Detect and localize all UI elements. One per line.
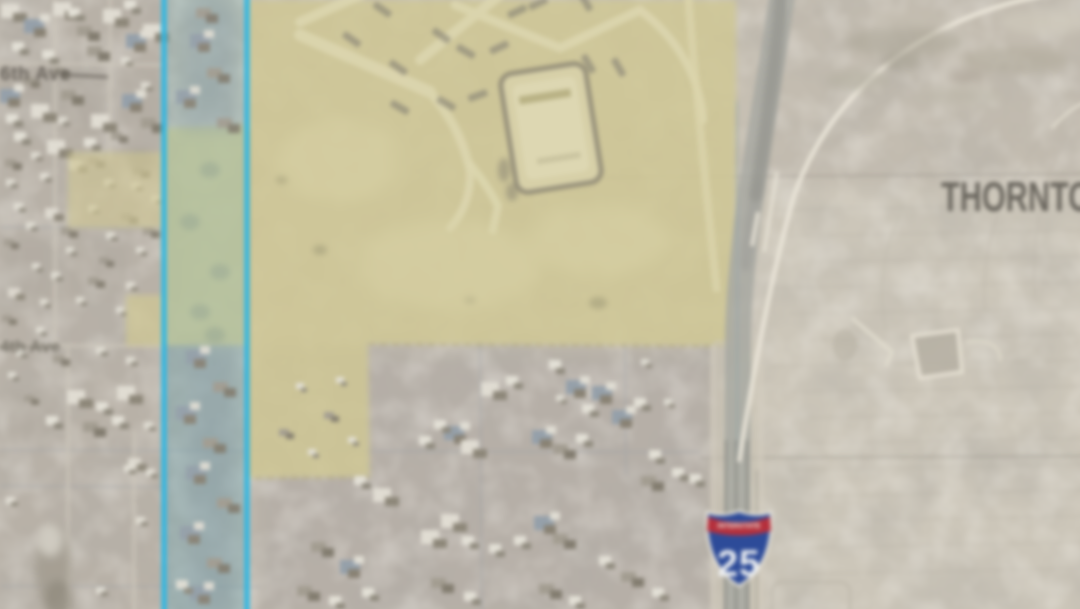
svg-text:THORNTON: THORNTON bbox=[941, 173, 1080, 220]
svg-text:INTERSTATE: INTERSTATE bbox=[718, 523, 761, 530]
svg-text:6th Ave: 6th Ave bbox=[0, 64, 71, 85]
svg-text:25: 25 bbox=[717, 543, 760, 584]
